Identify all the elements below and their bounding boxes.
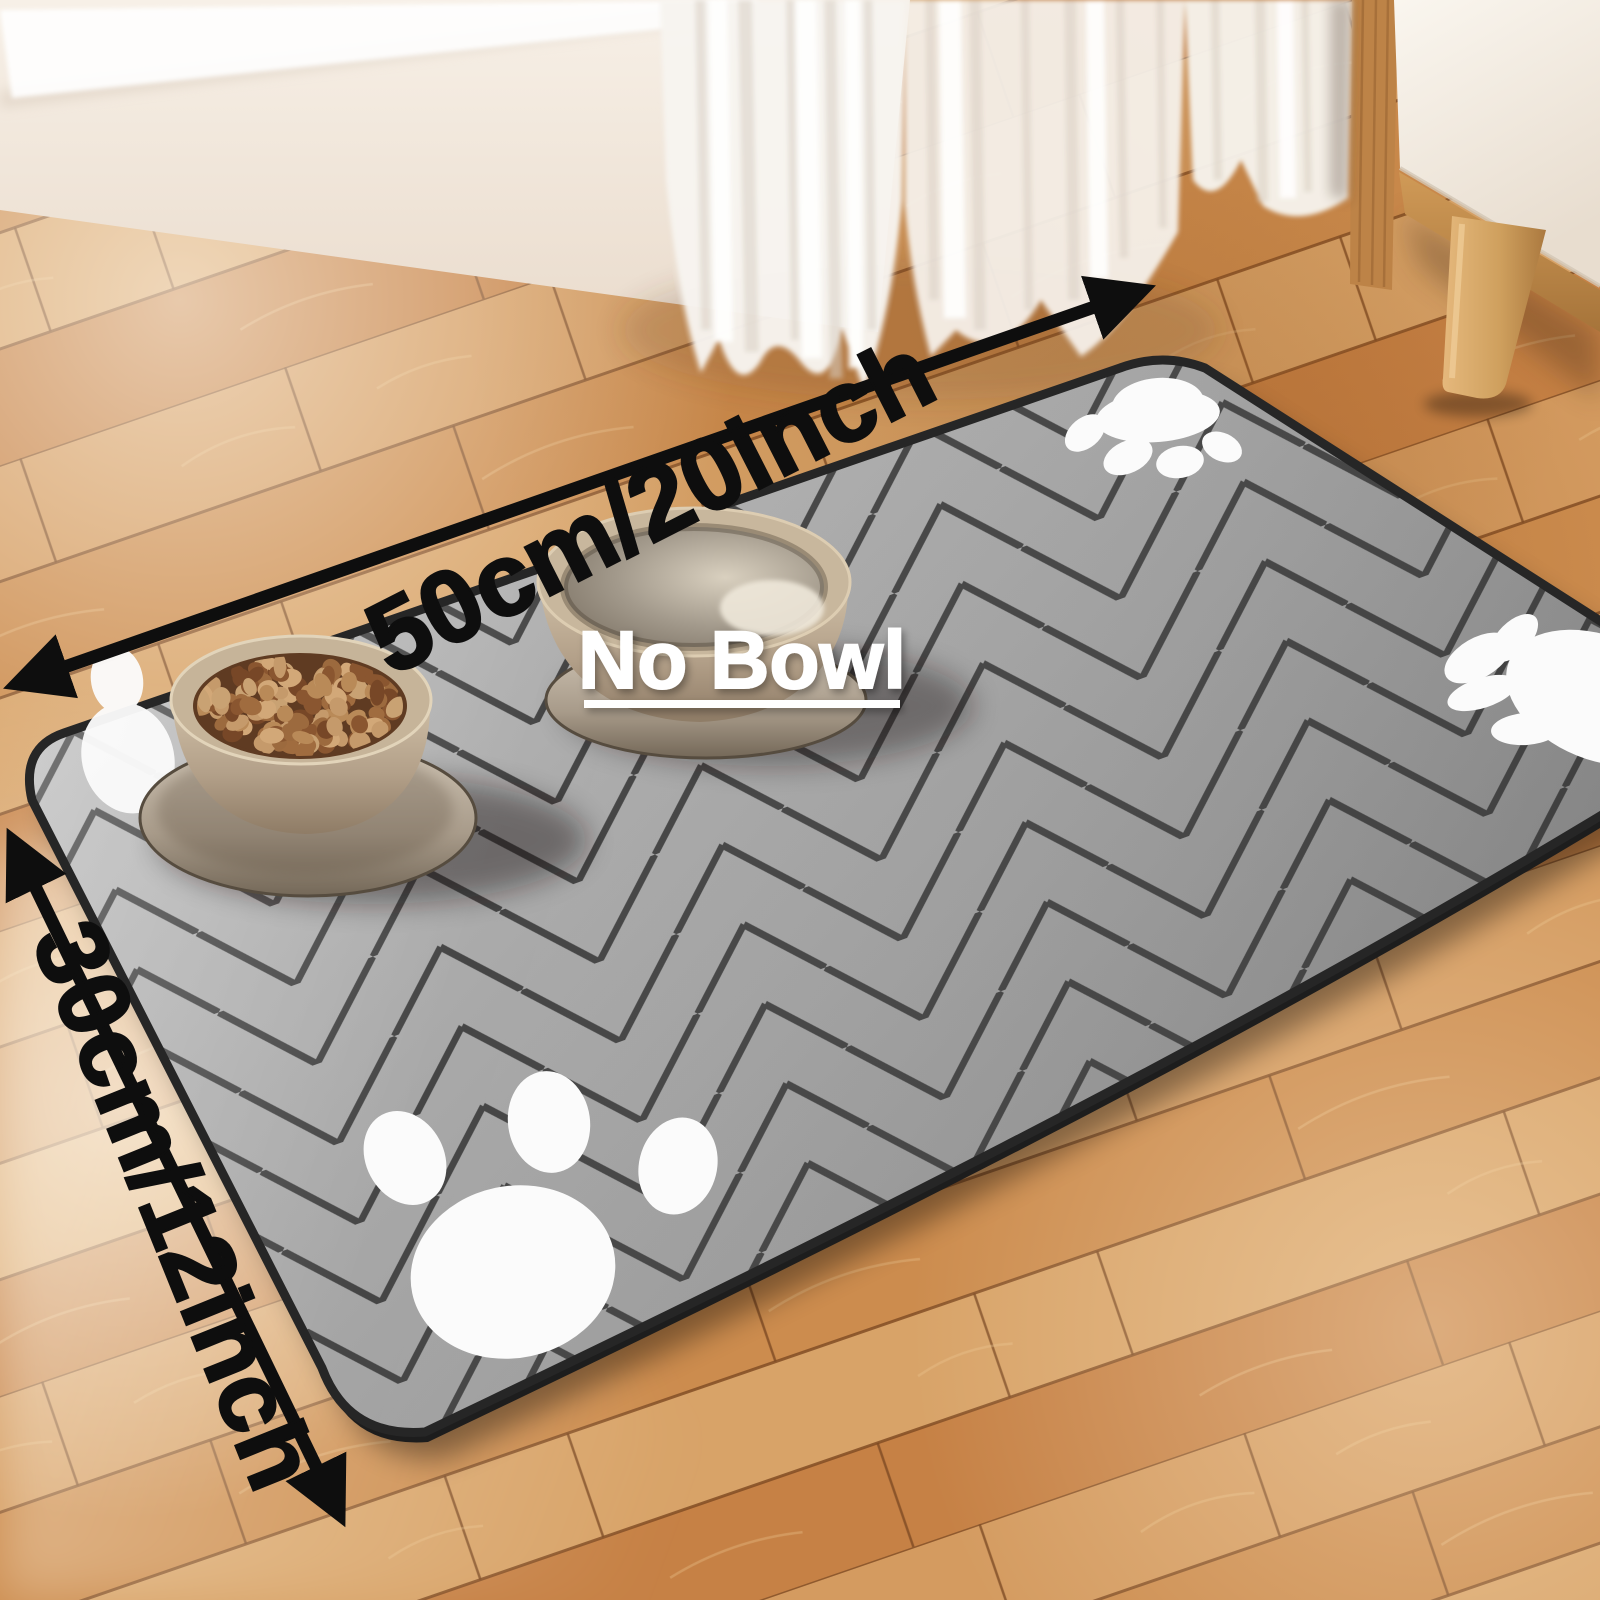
curtain-panel-right <box>1185 0 1352 216</box>
product-photo: 50cm/20inch 30cm/12inch No Bowl <box>0 0 1600 1600</box>
scene-canvas: 50cm/20inch 30cm/12inch No Bowl <box>0 0 1600 1600</box>
no-bowl-label: No Bowl <box>578 615 906 706</box>
no-bowl-callout: No Bowl <box>578 615 906 708</box>
no-bowl-underline <box>584 700 900 708</box>
